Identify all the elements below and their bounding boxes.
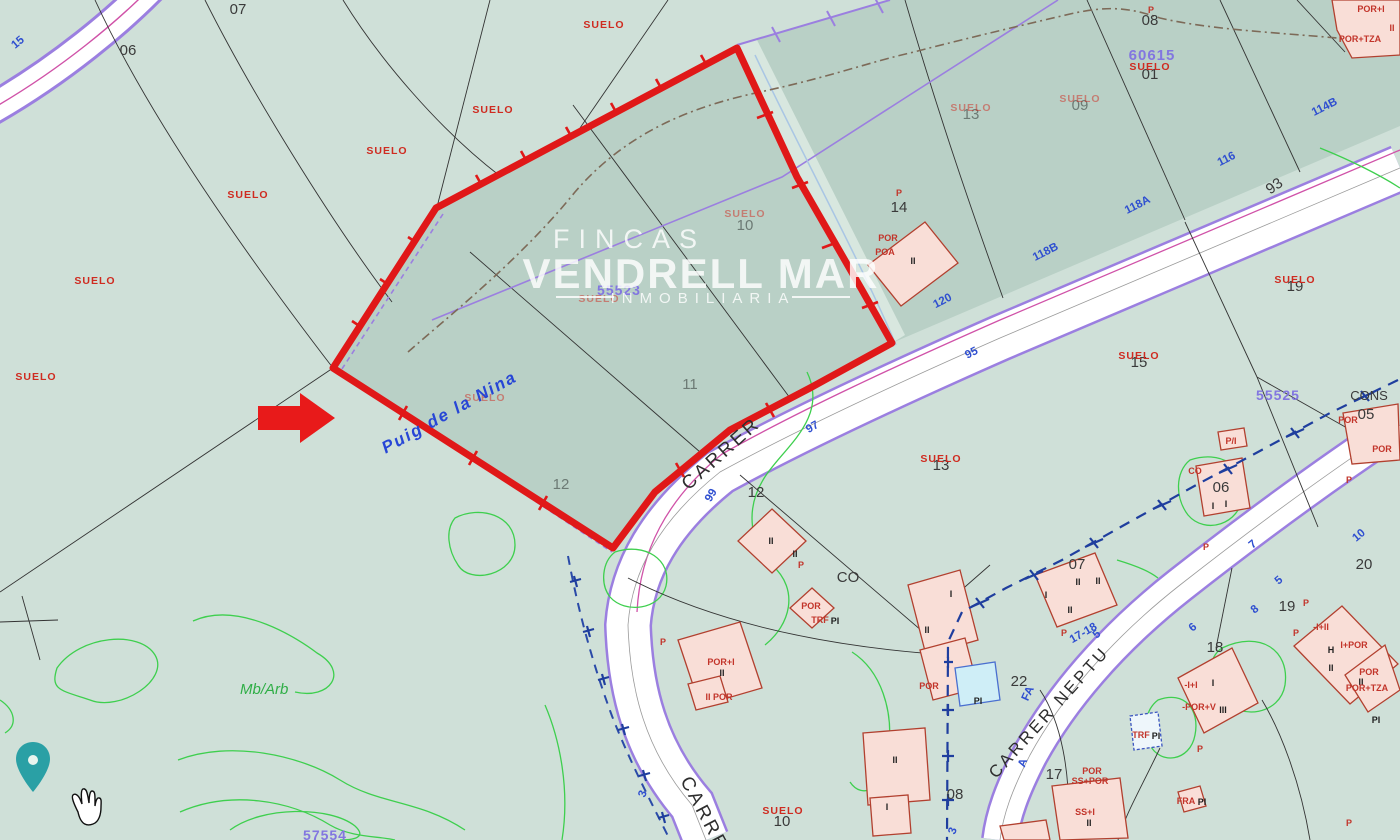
building-label: PI [1152,731,1161,741]
block-number: 60615 [1129,47,1176,64]
parcel-label: 08 [947,786,964,803]
building-label: P [896,188,902,198]
parcel-label: 18 [1207,639,1224,656]
suelo-label: SUELO [1059,93,1100,105]
parcel-label: 17 [1046,766,1063,783]
building-label: P [1148,5,1154,15]
building-label: II [792,549,797,559]
suelo-label: SUELO [920,453,961,465]
cadastral-map: 07 06 08 01 09 13 14 10 11 12 12 13 15 1… [0,0,1400,840]
suelo-label: SUELO [74,275,115,287]
building-label: P [660,637,666,647]
building-label: POR [801,601,821,611]
suelo-label: SUELO [1118,350,1159,362]
parcel-label: 05 [1358,406,1375,423]
building-label: II [768,536,773,546]
building-label: I [1212,678,1215,688]
watermark-line3: INMOBILIARIA [611,290,796,307]
parcel-label: 11 [682,376,698,393]
building-label: P [1346,818,1352,828]
building-label: I+POR [1340,640,1368,650]
building-label: POR [1082,766,1102,776]
suelo-label: SUELO [762,805,803,817]
parcel-label: 14 [891,199,908,216]
building-label: P [798,560,804,570]
building-label: TRF [811,615,829,625]
suelo-label: SUELO [366,145,407,157]
building-label: II [892,755,897,765]
suelo-label: SUELO [724,208,765,220]
building-label: POR [919,681,939,691]
building-label: II [1067,605,1072,615]
building-label: PI [1198,797,1207,807]
suelo-label: SUELO [1274,274,1315,286]
parcel-label: 12 [748,484,765,501]
building-label: II [924,625,929,635]
building-label: H [1328,645,1335,655]
building-label: P [1203,542,1209,552]
parcel-label: 20 [1356,556,1373,573]
building-label: III [1219,705,1227,715]
parcel-label: CONS [1350,388,1388,403]
building-label: II POR [705,692,733,702]
building-label: II [1075,577,1080,587]
block-number: 55525 [1256,387,1300,403]
building-label: POR [1359,667,1379,677]
suelo-label: SUELO [583,19,624,31]
building-label: II [1086,818,1091,828]
building-label: POR [1372,444,1392,454]
building-label: SS+POR [1072,776,1109,786]
parcel-label: 07 [230,1,247,18]
building-label: PI [831,616,840,626]
building-label: PI [1372,715,1381,725]
building-label: P/I [1225,436,1236,446]
building-label: I [950,589,953,599]
parcel-label: 12 [553,476,570,493]
parcel-label: CO [837,569,860,586]
building-label: II [1095,576,1100,586]
building-label: II [1389,23,1394,33]
building-label: II [719,668,724,678]
building-label: P [1061,628,1067,638]
building-label: POR+TZA [1346,683,1389,693]
building-label: POR+TZA [1339,34,1382,44]
building-label: P [1197,744,1203,754]
building-label: POR [1338,415,1358,425]
building-label: P [1346,475,1352,485]
building-label: I [886,802,889,812]
parcel-label: 07 [1069,556,1086,573]
parcel-label: 19 [1279,598,1296,615]
building-label: PI [974,696,983,706]
suelo-label: SUELO [15,371,56,383]
building-label: II [1328,663,1333,673]
suelo-label: SUELO [227,189,268,201]
building-label: POR [878,233,898,243]
building-label: -I+I [1184,680,1197,690]
building-label: I [1212,501,1215,511]
block-number: 57554 [303,827,347,840]
building-label: -POR+V [1182,702,1216,712]
cadastral-map-viewport[interactable]: 07 06 08 01 09 13 14 10 11 12 12 13 15 1… [0,0,1400,840]
building-label: -I+II [1313,622,1329,632]
parcel-label: 06 [1213,479,1230,496]
building-label: I [1045,590,1048,600]
vegetation-label: Mb/Arb [240,681,288,698]
building-label: POR+I [707,657,734,667]
building-label: I [1225,499,1228,509]
building-label: CO [1188,466,1202,476]
building-label: P [1293,628,1299,638]
suelo-label: SUELO [950,102,991,114]
building-label: SS+I [1075,807,1095,817]
building-label: TRF [1132,730,1150,740]
building-label: P [1303,598,1309,608]
building-label: POR+I [1357,4,1384,14]
suelo-label: SUELO [472,104,513,116]
building-label: FRA [1177,796,1196,806]
building-label: II [910,256,915,266]
parcel-label: 06 [120,42,137,59]
